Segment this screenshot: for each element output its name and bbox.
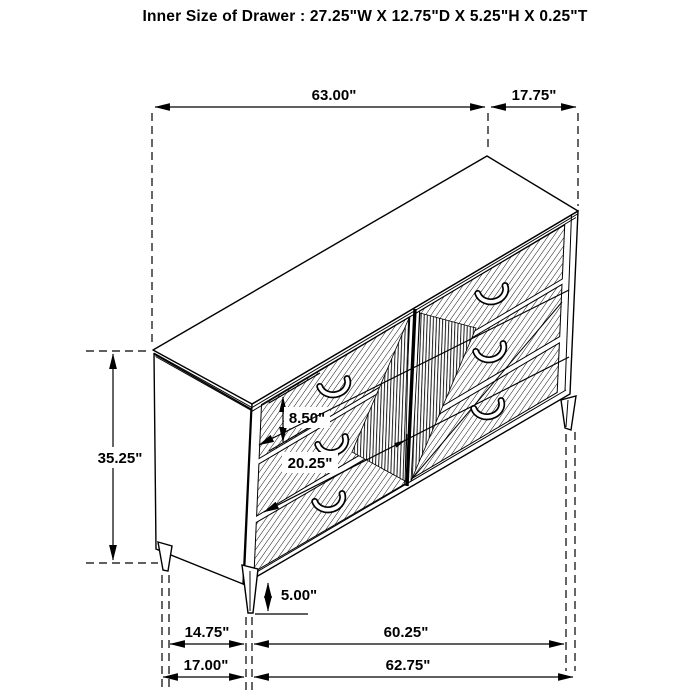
leg-back-left [158,542,172,571]
diagram-canvas: Inner Size of Drawer : 27.25"W X 12.75"D… [0,0,700,700]
dim-label-base-width: 62.75" [386,657,431,674]
dresser-dimension-diagram: 63.00" 17.75" [0,0,700,700]
dim-label-base-depth: 17.00" [184,657,229,674]
dim-label-top-width: 63.00" [312,87,357,104]
dim-label-drawer-height: 8.50" [289,410,325,427]
dim-label-leg-height: 5.00" [281,587,317,604]
dim-label-side-depth: 14.75" [185,624,230,641]
dim-overall-height: 35.25" [86,351,158,563]
dim-label-drawer-width: 20.25" [288,455,333,472]
dim-label-front-width: 60.25" [384,624,429,641]
dim-label-overall-height: 35.25" [98,450,143,467]
dim-label-top-depth: 17.75" [512,87,557,104]
dim-leg-height: 5.00" [255,583,321,614]
leg-back-right [561,396,576,430]
